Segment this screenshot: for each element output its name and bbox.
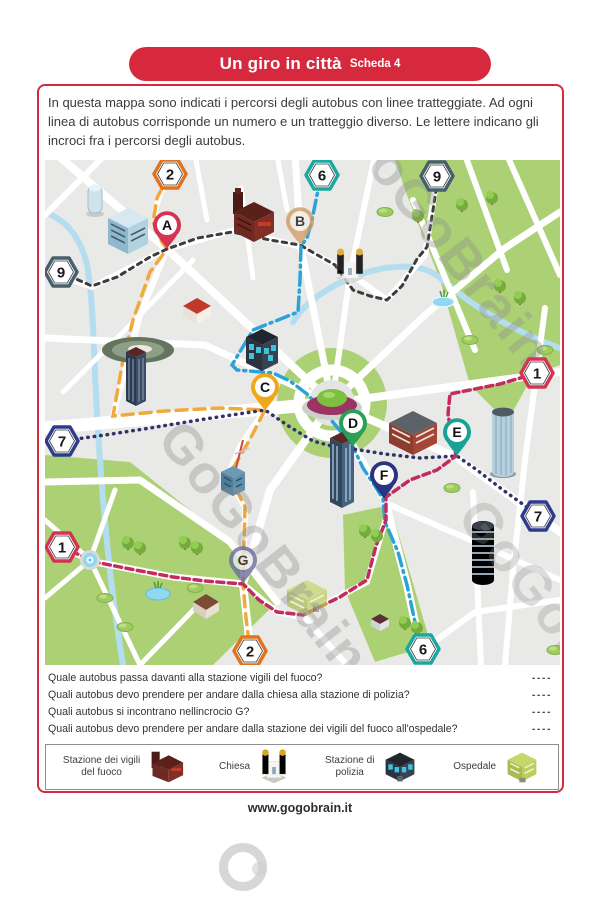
- svg-text:D: D: [348, 415, 358, 431]
- answer-blank: ----: [532, 687, 552, 704]
- question-row: Quali autobus devo prendere per andare d…: [48, 687, 552, 704]
- water-tower-building: [86, 185, 104, 218]
- svg-text:9: 9: [57, 264, 65, 281]
- city-map: GoGoBrain GoGoBrain GoGoBrain 2 6 9 9: [45, 160, 560, 665]
- question-text: Quali autobus devo prendere per andare d…: [48, 723, 458, 735]
- hospital-icon: [503, 749, 541, 785]
- question-row: Quale autobus passa davanti alla stazion…: [48, 670, 552, 687]
- svg-text:C: C: [260, 379, 270, 395]
- map-legend: Stazione dei vigili del fuoco Chiesa Sta…: [45, 744, 559, 790]
- bus-badge-6-top: 6: [306, 161, 338, 189]
- website-footer: www.gogobrain.it: [0, 801, 600, 815]
- svg-text:A: A: [162, 217, 172, 233]
- instructions-text: In questa mappa sono indicati i percorsi…: [48, 93, 560, 150]
- bottom-watermark-dot: [252, 862, 266, 876]
- church-icon: [257, 749, 291, 785]
- svg-text:7: 7: [534, 508, 542, 525]
- sheet-number: Scheda 4: [350, 58, 401, 70]
- bus-badge-6-bottom: 6: [407, 635, 439, 663]
- bus-badge-7-left: 7: [46, 427, 78, 455]
- svg-text:1: 1: [533, 365, 541, 382]
- legend-item-fire-station: Stazione dei vigili del fuoco: [63, 749, 185, 785]
- fire-station-icon: [147, 749, 185, 785]
- bus-badge-1-right: 1: [521, 359, 553, 387]
- police-station-building: [246, 329, 278, 371]
- worksheet-page: Un giro in città Scheda 4 In questa mapp…: [0, 0, 600, 900]
- svg-text:6: 6: [419, 641, 427, 658]
- svg-text:E: E: [452, 424, 461, 440]
- answer-blank: ----: [532, 670, 552, 687]
- page-title: Un giro in città: [220, 54, 342, 74]
- question-row: Quali autobus devo prendere per andare d…: [48, 721, 552, 738]
- svg-text:1: 1: [58, 539, 66, 556]
- legend-item-hospital: Ospedale: [453, 749, 541, 785]
- police-station-icon: [381, 749, 419, 785]
- bus-badge-1-left: 1: [46, 533, 78, 561]
- glass-tower-building: [490, 407, 516, 478]
- dark-tower-building: [126, 347, 146, 406]
- question-text: Quali autobus si incontrano nellincrocio…: [48, 706, 249, 718]
- questions-list: Quale autobus passa davanti alla stazion…: [48, 670, 552, 738]
- svg-text:B: B: [295, 213, 305, 229]
- bus-badge-2-top: 2: [154, 160, 186, 188]
- title-banner: Un giro in città Scheda 4: [129, 47, 491, 81]
- legend-label: Stazione dei vigili del fuoco: [63, 755, 140, 779]
- city-map-container: GoGoBrain GoGoBrain GoGoBrain 2 6 9 9: [45, 160, 560, 665]
- question-text: Quali autobus devo prendere per andare d…: [48, 689, 410, 701]
- svg-text:6: 6: [318, 167, 326, 184]
- svg-text:F: F: [380, 467, 389, 483]
- svg-text:7: 7: [58, 433, 66, 450]
- svg-text:9: 9: [433, 168, 441, 185]
- bus-badge-2-bottom: 2: [234, 637, 266, 665]
- answer-blank: ----: [532, 704, 552, 721]
- legend-item-church: Chiesa: [219, 749, 291, 785]
- legend-label: Stazione di polizia: [325, 755, 374, 779]
- question-text: Quale autobus passa davanti alla stazion…: [48, 672, 322, 684]
- svg-text:2: 2: [166, 166, 174, 183]
- bus-badge-7-right: 7: [522, 502, 554, 530]
- answer-blank: ----: [532, 721, 552, 738]
- question-row: Quali autobus si incontrano nellincrocio…: [48, 704, 552, 721]
- legend-label: Ospedale: [453, 761, 496, 773]
- legend-item-police: Stazione di polizia: [325, 749, 419, 785]
- bus-badge-9-left: 9: [45, 258, 77, 286]
- legend-label: Chiesa: [219, 761, 250, 773]
- skyscraper-building: [330, 432, 354, 508]
- svg-text:2: 2: [246, 643, 254, 660]
- svg-text:G: G: [238, 552, 249, 568]
- fountain: [80, 550, 100, 570]
- bus-badge-9-top: 9: [421, 162, 453, 190]
